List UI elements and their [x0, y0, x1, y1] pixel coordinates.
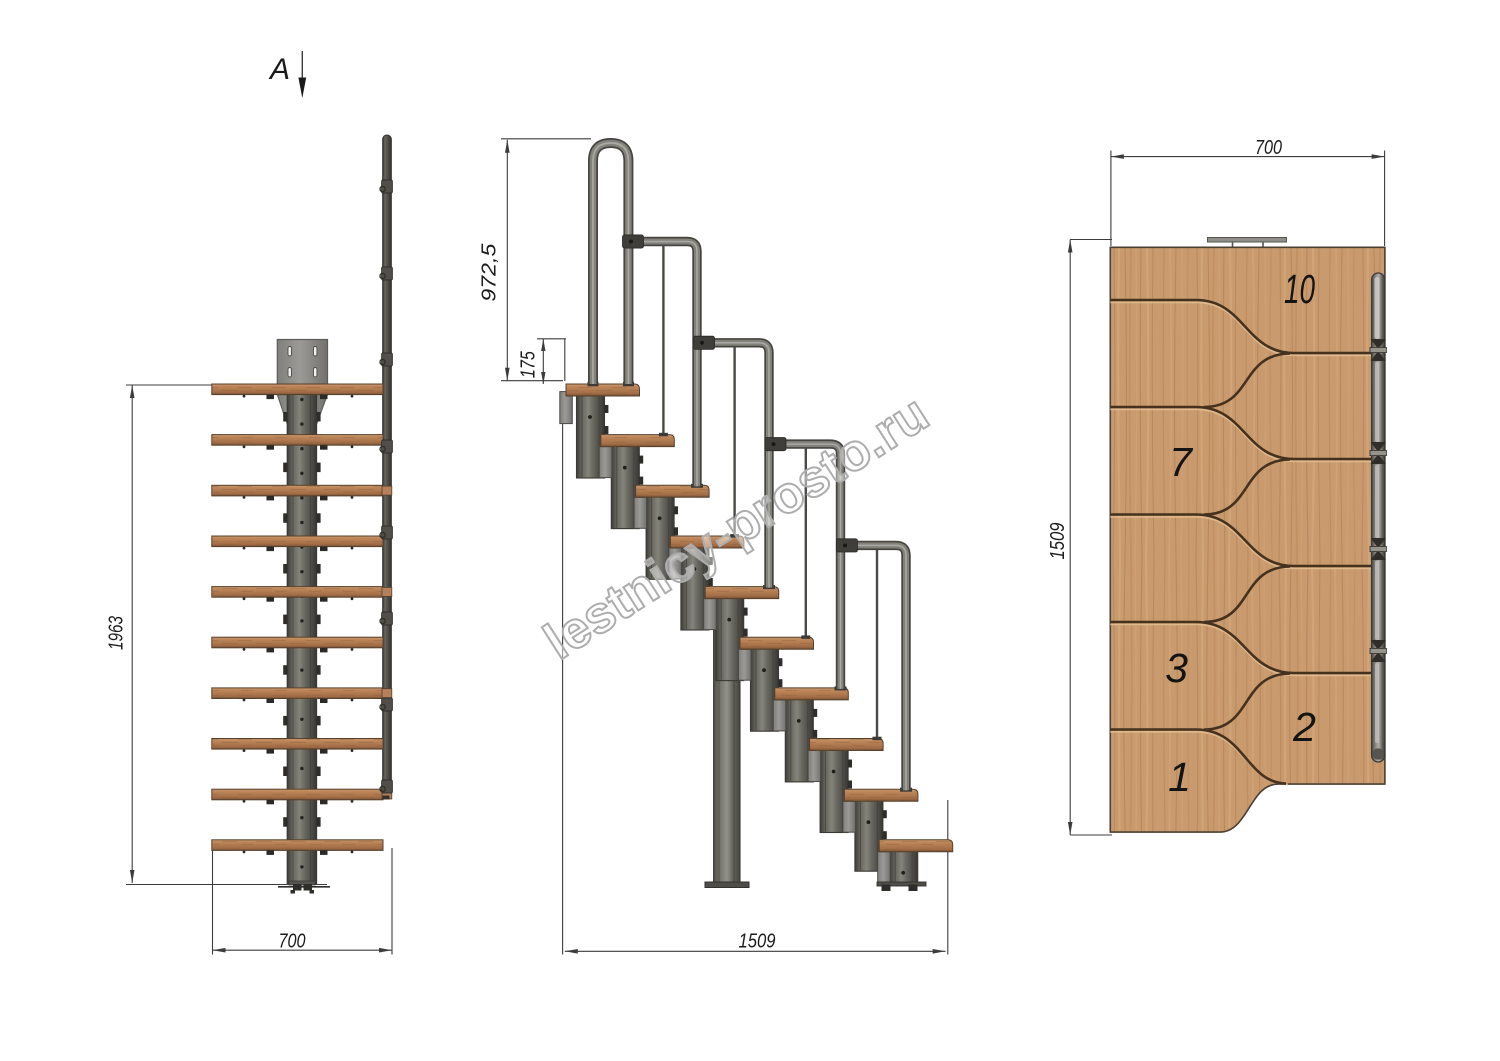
svg-text:1963: 1963	[106, 616, 128, 650]
svg-text:10: 10	[1284, 266, 1315, 312]
svg-text:175: 175	[518, 350, 540, 378]
svg-text:A: A	[268, 53, 290, 86]
svg-text:972,5: 972,5	[479, 243, 501, 302]
svg-text:700: 700	[279, 931, 306, 953]
svg-text:7: 7	[1169, 439, 1194, 485]
svg-text:700: 700	[1255, 137, 1282, 159]
svg-text:2: 2	[1292, 704, 1316, 750]
svg-text:1509: 1509	[1047, 523, 1069, 560]
svg-text:1509: 1509	[739, 931, 776, 953]
svg-text:3: 3	[1165, 645, 1188, 691]
svg-text:1: 1	[1168, 754, 1191, 800]
